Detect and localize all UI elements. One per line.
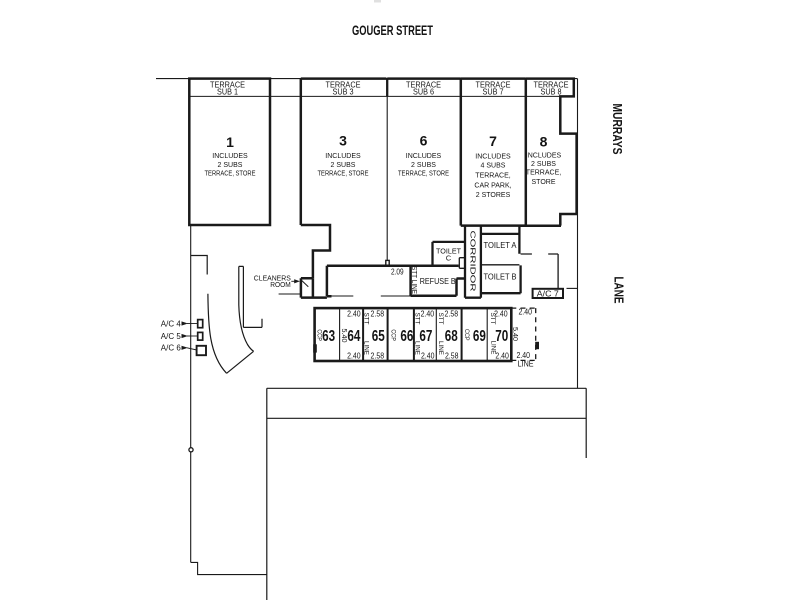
svg-text:TERRACE, STORE: TERRACE, STORE [205,168,256,177]
svg-text:SUB 7: SUB 7 [483,87,504,97]
svg-text:2.58: 2.58 [371,308,385,318]
svg-text:STT LINE: STT LINE [410,266,417,294]
svg-text:2 SUBS: 2 SUBS [531,161,556,168]
svg-text:2 STORES: 2 STORES [476,192,511,199]
svg-text:CCP: CCP [389,329,396,341]
svg-text:A/C 7: A/C 7 [537,289,560,298]
svg-text:2.58: 2.58 [445,351,459,361]
svg-text:STT: STT [362,313,369,325]
svg-text:2.58: 2.58 [371,351,385,361]
svg-text:2.09: 2.09 [391,266,404,276]
svg-text:69: 69 [473,328,486,345]
svg-text:8: 8 [540,133,548,149]
svg-text:2.40: 2.40 [518,306,532,316]
svg-text:7: 7 [489,133,497,149]
svg-text:66: 66 [400,328,413,345]
svg-text:INCLUDES: INCLUDES [406,153,442,160]
svg-text:LANE: LANE [611,277,626,304]
svg-text:LINE: LINE [437,341,444,356]
svg-text:INCLUDES: INCLUDES [475,153,511,160]
svg-text:2.40: 2.40 [421,308,435,318]
svg-text:A/C 6: A/C 6 [161,344,182,353]
svg-text:4 SUBS: 4 SUBS [481,163,506,170]
svg-text:2.40: 2.40 [421,351,435,361]
svg-text:1: 1 [226,134,234,150]
svg-text:3: 3 [339,133,347,149]
svg-text:LINE: LINE [362,341,369,356]
svg-text:REFUSE B: REFUSE B [420,277,456,286]
svg-text:LINE: LINE [518,360,534,369]
svg-text:68: 68 [445,328,458,345]
svg-text:A/C 4: A/C 4 [161,319,182,328]
svg-text:INCLUDES: INCLUDES [325,153,361,160]
svg-text:TERRACE,: TERRACE, [526,170,561,177]
svg-text:CCP: CCP [463,329,470,341]
svg-text:CORRIDOR: CORRIDOR [468,231,477,292]
svg-text:INCLUDES: INCLUDES [212,153,248,160]
svg-text:GOUGER STREET: GOUGER STREET [352,22,433,38]
svg-text:2.40: 2.40 [347,351,361,361]
svg-text:LINE: LINE [414,341,421,356]
svg-text:STT: STT [489,313,496,325]
svg-text:2.58: 2.58 [445,308,459,318]
svg-text:STORE: STORE [532,179,556,186]
svg-text:64: 64 [347,328,360,345]
svg-text:STT: STT [437,313,444,325]
svg-text:C: C [446,254,452,263]
svg-text:INCLUDES: INCLUDES [526,152,562,159]
svg-text:SUB 8: SUB 8 [541,87,562,97]
svg-text:2.40: 2.40 [347,308,361,318]
svg-text:65: 65 [372,328,385,345]
svg-text:TERRACE, STORE: TERRACE, STORE [398,168,449,177]
svg-text:SUB 1: SUB 1 [217,87,238,97]
svg-text:2.40: 2.40 [495,351,509,361]
svg-text:63: 63 [322,328,335,345]
svg-text:TOILET A: TOILET A [484,241,518,250]
svg-text:2.40: 2.40 [516,350,530,360]
svg-text:SUB 6: SUB 6 [413,87,434,97]
svg-text:MURRAYS: MURRAYS [610,104,625,155]
svg-text:5.40: 5.40 [511,327,520,341]
svg-text:A/C 5: A/C 5 [161,332,182,341]
svg-text:6: 6 [420,133,428,149]
svg-text:TOILET B: TOILET B [484,273,517,282]
svg-text:TERRACE, STORE: TERRACE, STORE [318,168,369,177]
svg-text:TERRACE,: TERRACE, [475,173,510,180]
svg-text:STT: STT [414,313,421,325]
svg-text:CAR PARK,: CAR PARK, [474,182,511,189]
svg-text:SUB 3: SUB 3 [333,87,354,97]
svg-text:ROOM: ROOM [270,280,291,289]
